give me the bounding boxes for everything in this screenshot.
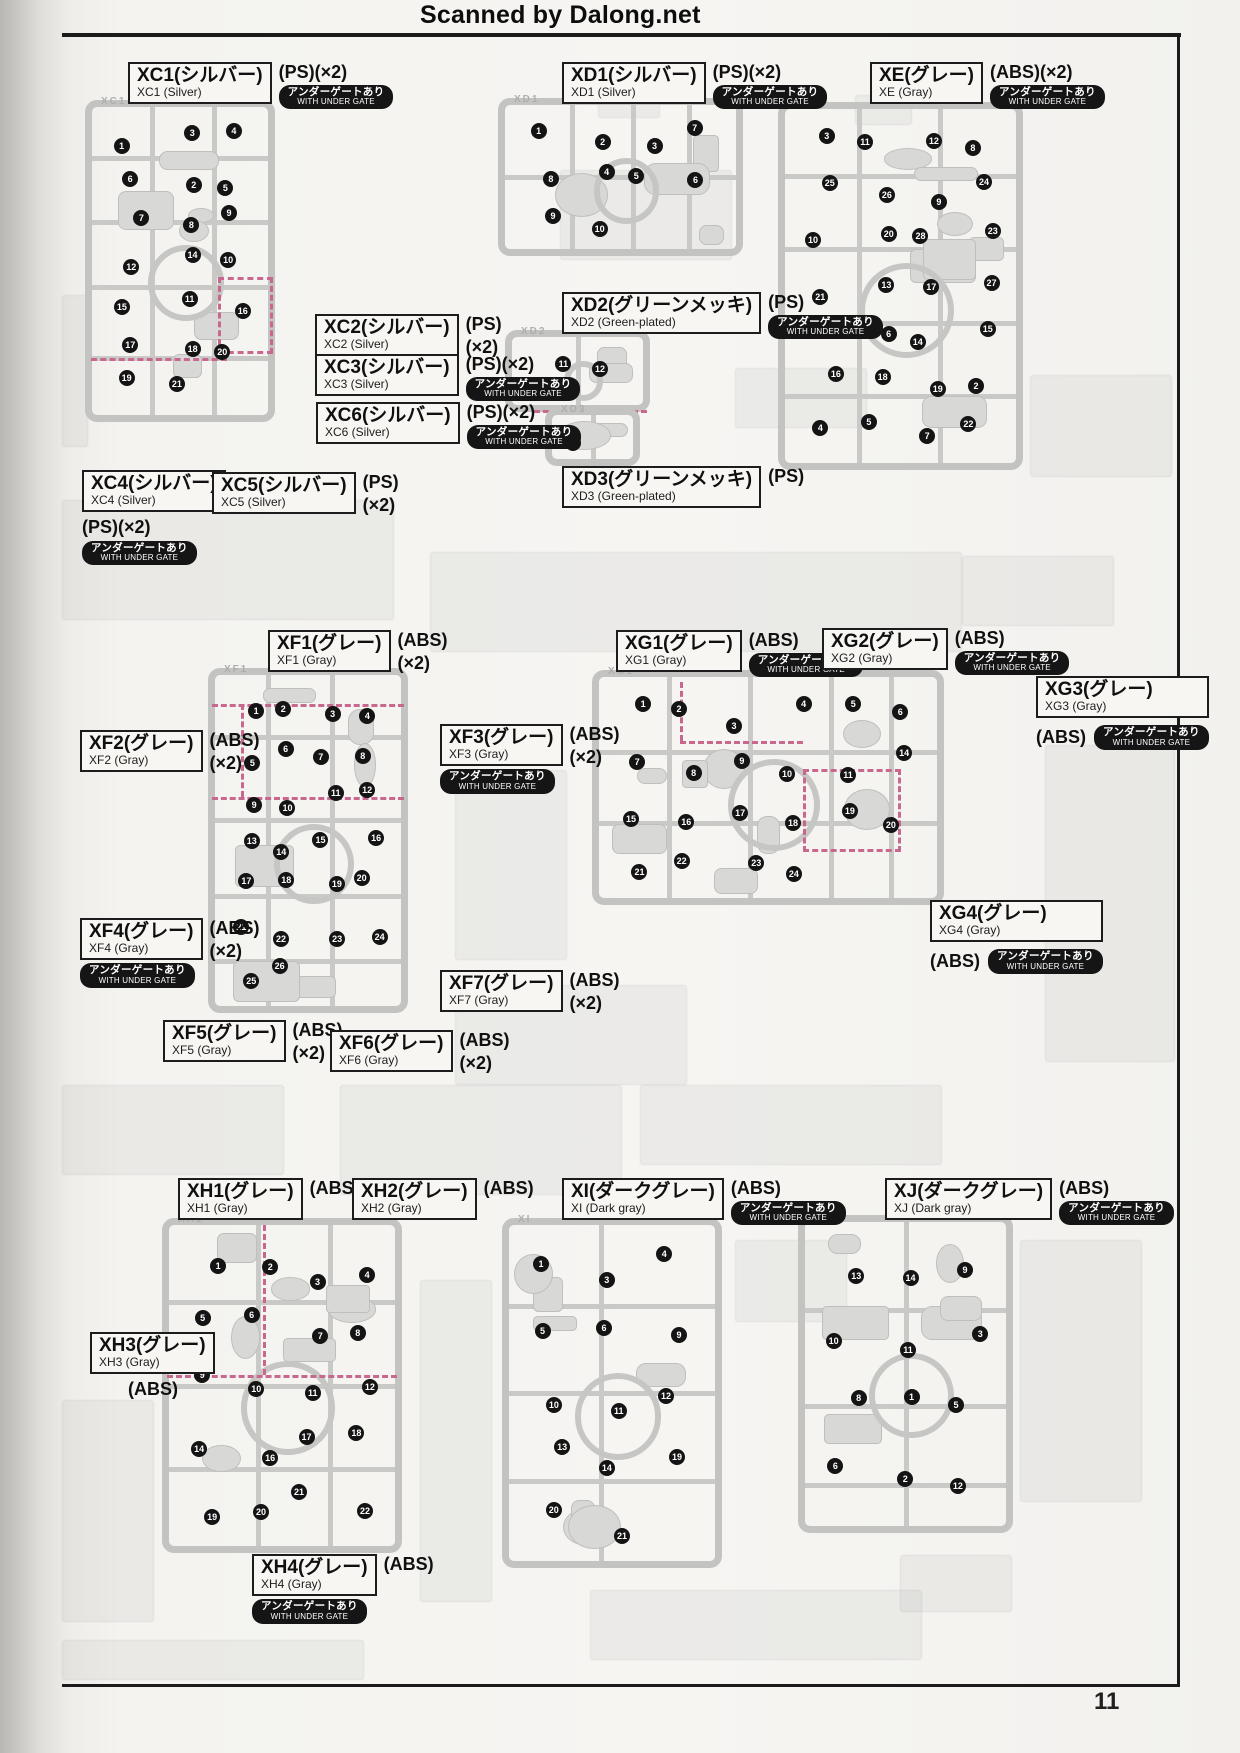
undergate-cut-line — [680, 741, 803, 744]
material-qty-text: (ABS) — [1059, 1178, 1174, 1199]
label-en-text: XF4 (Gray) — [89, 942, 194, 956]
label-side-column: (PS)(×2)アンダーゲートありWITH UNDER GATE — [467, 402, 582, 449]
part-number-marker: 11 — [182, 291, 198, 307]
material-qty-text: (ABS) — [210, 918, 260, 939]
label-jp-text: XG2(グレー) — [831, 631, 939, 652]
label-column: XG3(グレー)XG3 (Gray)(ABS)アンダーゲートありWITH UND… — [1036, 676, 1209, 750]
label-box: XG3(グレー)XG3 (Gray) — [1036, 676, 1209, 718]
part-number-marker: 6 — [687, 172, 703, 188]
label-jp-text: XI(ダークグレー) — [571, 1181, 715, 1202]
part-number-marker: 14 — [903, 1270, 919, 1286]
part-number-marker: 21 — [614, 1528, 630, 1544]
label-box: XC6(シルバー)XC6 (Silver) — [316, 402, 460, 444]
molded-part-shape — [202, 1445, 240, 1472]
badge-en-text: WITH UNDER GATE — [777, 328, 874, 336]
badge-en-text: WITH UNDER GATE — [449, 783, 546, 791]
badge-en-text: WITH UNDER GATE — [288, 98, 385, 106]
molded-part-shape — [637, 768, 668, 784]
label-box: XJ(ダークグレー)XJ (Dark gray) — [885, 1178, 1052, 1220]
badge-jp-text: アンダーゲートあり — [89, 965, 186, 976]
badge-jp-text: アンダーゲートあり — [722, 87, 819, 98]
molded-part-shape — [937, 212, 973, 236]
under-gate-badge: アンダーゲートありWITH UNDER GATE — [466, 377, 581, 402]
label-en-text: XG4 (Gray) — [939, 924, 1094, 938]
label-box: XH3(グレー)XH3 (Gray) — [90, 1332, 215, 1374]
label-jp-text: XC5(シルバー) — [221, 475, 347, 496]
badge-jp-text: アンダーゲートあり — [475, 379, 572, 390]
part-number-marker: 9 — [734, 753, 750, 769]
label-column: XC3(シルバー)XC3 (Silver) — [315, 354, 459, 396]
material-qty-text: (PS)(×2) — [279, 62, 394, 83]
badge-en-text: WITH UNDER GATE — [997, 963, 1094, 971]
label-side-column: (ABS)アンダーゲートありWITH UNDER GATE — [731, 1178, 846, 1225]
part-number-marker: 26 — [272, 958, 288, 974]
part-number-marker: 24 — [786, 866, 802, 882]
material-qty-text: (×2) — [570, 747, 620, 768]
label-en-text: XD2 (Green-plated) — [571, 316, 752, 330]
material-qty-text: (×2) — [210, 753, 260, 774]
part-number-marker: 15 — [114, 299, 130, 315]
label-below-line: (PS)(×2) — [82, 517, 226, 538]
under-gate-badge: アンダーゲートありWITH UNDER GATE — [467, 425, 582, 450]
label-jp-text: XC1(シルバー) — [137, 65, 263, 86]
part-number-marker: 14 — [191, 1441, 207, 1457]
under-gate-badge: アンダーゲートありWITH UNDER GATE — [80, 963, 195, 988]
part-number-marker: 19 — [842, 803, 858, 819]
badge-jp-text: アンダーゲートあり — [997, 951, 1094, 962]
label-column: XG2(グレー)XG2 (Gray) — [822, 628, 948, 670]
label-en-text: XG2 (Gray) — [831, 652, 939, 666]
label-jp-text: XH2(グレー) — [361, 1181, 468, 1202]
badge-jp-text: アンダーゲートあり — [288, 87, 385, 98]
part-number-marker: 6 — [122, 171, 138, 187]
label-box: XG4(グレー)XG4 (Gray) — [930, 900, 1103, 942]
label-jp-text: XF2(グレー) — [89, 733, 194, 754]
part-number-marker: 10 — [546, 1397, 562, 1413]
part-number-marker: 20 — [881, 226, 897, 242]
runner-xj: XJ13149101138156212 — [798, 1215, 1013, 1533]
part-number-marker: 17 — [299, 1429, 315, 1445]
runner-label-xc1: XC1(シルバー)XC1 (Silver)(PS)(×2)アンダーゲートありWI… — [128, 62, 393, 109]
part-number-marker: 4 — [796, 696, 812, 712]
label-column: XD3(グリーンメッキ)XD3 (Green-plated) — [562, 466, 761, 508]
part-number-marker: 6 — [881, 326, 897, 342]
badge-jp-text: アンダーゲートあり — [449, 771, 546, 782]
label-box: XC1(シルバー)XC1 (Silver) — [128, 62, 272, 104]
material-qty-text: (PS) — [466, 314, 502, 335]
label-en-text: XF3 (Gray) — [449, 748, 554, 762]
badge-en-text: WITH UNDER GATE — [999, 98, 1096, 106]
label-en-text: XC5 (Silver) — [221, 496, 347, 510]
bleed-through-ghost — [62, 1085, 284, 1175]
part-number-marker: 11 — [857, 134, 873, 150]
part-number-marker: 26 — [879, 187, 895, 203]
material-qty-text: (ABS) — [1036, 727, 1086, 748]
molded-part-shape — [568, 1505, 620, 1549]
label-box: XF5(グレー)XF5 (Gray) — [163, 1020, 286, 1062]
runner-label-xg3: XG3(グレー)XG3 (Gray)(ABS)アンダーゲートありWITH UND… — [1036, 676, 1209, 750]
label-side-column: (PS)(×2)アンダーゲートありWITH UNDER GATE — [713, 62, 828, 109]
label-jp-text: XF3(グレー) — [449, 727, 554, 748]
part-number-marker: 10 — [826, 1333, 842, 1349]
part-number-marker: 3 — [599, 1272, 615, 1288]
under-gate-badge: アンダーゲートありWITH UNDER GATE — [988, 949, 1103, 974]
badge-jp-text: アンダーゲートあり — [777, 317, 874, 328]
label-column: XI(ダークグレー)XI (Dark gray) — [562, 1178, 724, 1220]
molded-part-shape — [914, 167, 978, 181]
molded-part-shape — [714, 868, 757, 894]
badge-en-text: WITH UNDER GATE — [964, 664, 1061, 672]
label-side-column: (PS)(×2) — [363, 472, 399, 515]
label-jp-text: XH1(グレー) — [187, 1181, 294, 1202]
label-en-text: XG1 (Gray) — [625, 654, 733, 668]
badge-en-text: WITH UNDER GATE — [740, 1214, 837, 1222]
label-jp-text: XH4(グレー) — [261, 1557, 368, 1578]
label-box: XF6(グレー)XF6 (Gray) — [330, 1030, 453, 1072]
label-jp-text: XC2(シルバー) — [324, 317, 450, 338]
under-gate-badge: アンダーゲートありWITH UNDER GATE — [1094, 725, 1209, 750]
undergate-cut-line — [212, 797, 404, 800]
label-en-text: XF7 (Gray) — [449, 994, 554, 1008]
part-number-marker: 1 — [248, 703, 264, 719]
label-en-text: XJ (Dark gray) — [894, 1202, 1043, 1216]
material-qty-text: (ABS) — [484, 1178, 534, 1199]
label-en-text: XC4 (Silver) — [91, 494, 217, 508]
label-en-text: XC6 (Silver) — [325, 426, 451, 440]
label-en-text: XD1 (Silver) — [571, 86, 697, 100]
runner-label-xg2: XG2(グレー)XG2 (Gray)(ABS)アンダーゲートありWITH UND… — [822, 628, 1069, 675]
runner-label-xf3: XF3(グレー)XF3 (Gray)アンダーゲートありWITH UNDER GA… — [440, 724, 620, 794]
part-number-marker: 19 — [119, 370, 135, 386]
bleed-through-ghost — [962, 556, 1114, 626]
label-en-text: XH3 (Gray) — [99, 1356, 206, 1370]
material-qty-text: (×2) — [570, 993, 620, 1014]
part-number-marker: 3 — [972, 1326, 988, 1342]
runner-molded-tag: XD1 — [514, 94, 539, 105]
sprue-bar — [169, 1467, 395, 1472]
part-number-marker: 12 — [926, 133, 942, 149]
badge-jp-text: アンダーゲートあり — [476, 427, 573, 438]
label-jp-text: XC3(シルバー) — [324, 357, 450, 378]
part-number-marker: 5 — [535, 1323, 551, 1339]
part-number-marker: 19 — [930, 381, 946, 397]
runner-molded-tag: XC1 — [101, 96, 126, 107]
label-box: XC5(シルバー)XC5 (Silver) — [212, 472, 356, 514]
part-number-marker: 5 — [948, 1397, 964, 1413]
label-side-column: (PS)(×2)アンダーゲートありWITH UNDER GATE — [466, 354, 581, 401]
page-number: 11 — [1094, 1688, 1119, 1716]
part-number-marker: 27 — [984, 275, 1000, 291]
label-side-column: (PS)(×2) — [466, 314, 502, 357]
material-qty-text: (PS)(×2) — [713, 62, 828, 83]
part-number-marker: 12 — [950, 1478, 966, 1494]
label-side-column: (ABS)アンダーゲートありWITH UNDER GATE — [1059, 1178, 1174, 1225]
part-number-marker: 8 — [965, 140, 981, 156]
molded-part-shape — [612, 824, 667, 854]
label-column: XC6(シルバー)XC6 (Silver) — [316, 402, 460, 444]
part-number-marker: 18 — [185, 341, 201, 357]
badge-jp-text: アンダーゲートあり — [261, 1601, 358, 1612]
runner-label-xd1: XD1(シルバー)XD1 (Silver)(PS)(×2)アンダーゲートありWI… — [562, 62, 827, 109]
part-number-marker: 14 — [185, 247, 201, 263]
part-number-marker: 12 — [592, 361, 608, 377]
label-jp-text: XC6(シルバー) — [325, 405, 451, 426]
part-number-marker: 11 — [611, 1403, 627, 1419]
part-number-marker: 1 — [904, 1389, 920, 1405]
label-en-text: XH4 (Gray) — [261, 1578, 368, 1592]
runner-label-xc6: XC6(シルバー)XC6 (Silver)(PS)(×2)アンダーゲートありWI… — [316, 402, 581, 449]
runner-label-xg4: XG4(グレー)XG4 (Gray)(ABS)アンダーゲートありWITH UND… — [930, 900, 1103, 974]
part-number-marker: 1 — [114, 138, 130, 154]
badge-jp-text: アンダーゲートあり — [999, 87, 1096, 98]
label-box: XE(グレー)XE (Gray) — [870, 62, 983, 104]
bleed-through-ghost — [455, 770, 567, 960]
label-column: XH2(グレー)XH2 (Gray) — [352, 1178, 477, 1220]
under-gate-badge: アンダーゲートありWITH UNDER GATE — [955, 651, 1070, 676]
label-box: XI(ダークグレー)XI (Dark gray) — [562, 1178, 724, 1220]
part-number-marker: 22 — [273, 931, 289, 947]
label-jp-text: XF7(グレー) — [449, 973, 554, 994]
label-column: XH3(グレー)XH3 (Gray)(ABS) — [90, 1332, 215, 1400]
bleed-through-ghost — [62, 1400, 154, 1622]
part-number-marker: 5 — [195, 1310, 211, 1326]
part-number-marker: 19 — [669, 1449, 685, 1465]
material-qty-text: (ABS) — [398, 630, 448, 651]
runner-label-xh2: XH2(グレー)XH2 (Gray)(ABS) — [352, 1178, 534, 1220]
bleed-through-ghost — [1020, 1240, 1142, 1502]
under-gate-badge: アンダーゲートありWITH UNDER GATE — [768, 315, 883, 340]
label-below-line: (ABS) — [128, 1379, 215, 1400]
part-number-marker: 16 — [235, 303, 251, 319]
material-qty-text: (ABS)(×2) — [990, 62, 1105, 83]
part-number-marker: 23 — [748, 855, 764, 871]
label-box: XF3(グレー)XF3 (Gray) — [440, 724, 563, 766]
part-number-marker: 11 — [305, 1385, 321, 1401]
material-qty-text: (ABS) — [955, 628, 1070, 649]
part-number-marker: 19 — [204, 1509, 220, 1525]
molded-part-shape — [824, 1414, 882, 1444]
label-box: XG2(グレー)XG2 (Gray) — [822, 628, 948, 670]
part-number-marker: 3 — [726, 718, 742, 734]
part-number-marker: 7 — [313, 749, 329, 765]
label-side-column: (ABS)(×2) — [398, 630, 448, 673]
label-jp-text: XD2(グリーンメッキ) — [571, 295, 752, 316]
material-qty-text: (ABS) — [570, 724, 620, 745]
label-column: XF6(グレー)XF6 (Gray) — [330, 1030, 453, 1072]
part-number-marker: 22 — [960, 416, 976, 432]
label-column: XF7(グレー)XF7 (Gray) — [440, 970, 563, 1012]
runner-label-xc2: XC2(シルバー)XC2 (Silver)(PS)(×2) — [315, 314, 502, 357]
bleed-through-ghost — [1030, 375, 1172, 477]
material-qty-text: (ABS) — [930, 951, 980, 972]
part-number-marker: 2 — [262, 1259, 278, 1275]
label-column: XC4(シルバー)XC4 (Silver)(PS)(×2)アンダーゲートありWI… — [82, 470, 226, 565]
label-jp-text: XG1(グレー) — [625, 633, 733, 654]
part-number-marker: 16 — [368, 830, 384, 846]
badge-en-text: WITH UNDER GATE — [475, 390, 572, 398]
label-row-line: (ABS)アンダーゲートありWITH UNDER GATE — [930, 949, 1103, 974]
part-number-marker: 13 — [244, 833, 260, 849]
runner-label-xf2: XF2(グレー)XF2 (Gray)(ABS)(×2) — [80, 730, 260, 773]
part-number-marker: 10 — [248, 1381, 264, 1397]
label-column: XH1(グレー)XH1 (Gray) — [178, 1178, 303, 1220]
label-box: XH1(グレー)XH1 (Gray) — [178, 1178, 303, 1220]
part-number-marker: 9 — [246, 797, 262, 813]
part-number-marker: 20 — [883, 817, 899, 833]
part-number-marker: 23 — [985, 223, 1001, 239]
under-gate-badge: アンダーゲートありWITH UNDER GATE — [279, 85, 394, 110]
label-side-column: (ABS) — [384, 1554, 434, 1575]
part-number-marker: 4 — [599, 164, 615, 180]
material-qty-text: (PS)(×2) — [467, 402, 582, 423]
label-box: XC2(シルバー)XC2 (Silver) — [315, 314, 459, 356]
part-number-marker: 2 — [595, 134, 611, 150]
under-gate-badge: アンダーゲートありWITH UNDER GATE — [713, 85, 828, 110]
material-qty-text: (PS)(×2) — [466, 354, 581, 375]
part-number-marker: 10 — [779, 766, 795, 782]
label-en-text: XF5 (Gray) — [172, 1044, 277, 1058]
material-qty-text: (×2) — [398, 653, 448, 674]
label-column: XF3(グレー)XF3 (Gray)アンダーゲートありWITH UNDER GA… — [440, 724, 563, 794]
label-jp-text: XJ(ダークグレー) — [894, 1181, 1043, 1202]
part-number-marker: 21 — [169, 376, 185, 392]
label-column: XD2(グリーンメッキ)XD2 (Green-plated) — [562, 292, 761, 334]
part-number-marker: 12 — [359, 782, 375, 798]
runner-xi: XI1345691011121314192021 — [502, 1218, 722, 1568]
label-box: XH2(グレー)XH2 (Gray) — [352, 1178, 477, 1220]
part-number-marker: 3 — [184, 125, 200, 141]
molded-part-shape — [271, 1277, 311, 1300]
part-number-marker: 20 — [546, 1502, 562, 1518]
molded-part-shape — [843, 720, 881, 749]
label-column: XG4(グレー)XG4 (Gray)(ABS)アンダーゲートありWITH UND… — [930, 900, 1103, 974]
runner-label-xe: XE(グレー)XE (Gray)(ABS)(×2)アンダーゲートありWITH U… — [870, 62, 1105, 109]
content-layer: XC11346257891214101511161718201921XD1123… — [0, 0, 1240, 1753]
part-number-marker: 6 — [596, 1320, 612, 1336]
label-en-text: XH2 (Gray) — [361, 1202, 468, 1216]
bleed-through-ghost — [900, 1555, 1012, 1612]
runner-label-xj: XJ(ダークグレー)XJ (Dark gray)(ABS)アンダーゲートありWI… — [885, 1178, 1174, 1225]
undergate-cut-line — [91, 358, 228, 361]
badge-jp-text: アンダーゲートあり — [1068, 1203, 1165, 1214]
part-number-marker: 8 — [355, 748, 371, 764]
runner-label-xf4: XF4(グレー)XF4 (Gray)アンダーゲートありWITH UNDER GA… — [80, 918, 260, 988]
label-en-text: XC3 (Silver) — [324, 378, 450, 392]
runner-xg1: XG112345678910111415161718192021222324 — [592, 670, 944, 905]
label-box: XC4(シルバー)XC4 (Silver) — [82, 470, 226, 512]
label-side-column: (ABS)(×2) — [570, 970, 620, 1013]
label-row-line: (ABS)アンダーゲートありWITH UNDER GATE — [1036, 725, 1209, 750]
label-en-text: XI (Dark gray) — [571, 1202, 715, 1216]
part-number-marker: 1 — [531, 123, 547, 139]
label-side-column: (ABS)(×2) — [210, 918, 260, 961]
material-qty-text: (PS)(×2) — [82, 517, 226, 538]
label-box: XC3(シルバー)XC3 (Silver) — [315, 354, 459, 396]
under-gate-badge: アンダーゲートありWITH UNDER GATE — [440, 769, 555, 794]
runner-label-xi: XI(ダークグレー)XI (Dark gray)(ABS)アンダーゲートありWI… — [562, 1178, 846, 1225]
molded-part-shape — [263, 688, 316, 704]
manual-page: Scanned by Dalong.net XC1134625789121410… — [0, 0, 1240, 1753]
label-en-text: XF2 (Gray) — [89, 754, 194, 768]
runner-label-xf6: XF6(グレー)XF6 (Gray)(ABS)(×2) — [330, 1030, 510, 1073]
sprue-bar — [266, 675, 271, 1006]
badge-en-text: WITH UNDER GATE — [1103, 739, 1200, 747]
label-side-column: (ABS)アンダーゲートありWITH UNDER GATE — [955, 628, 1070, 675]
part-number-marker: 22 — [674, 853, 690, 869]
molded-part-shape — [159, 151, 219, 170]
runner-label-xf5: XF5(グレー)XF5 (Gray)(ABS)(×2) — [163, 1020, 343, 1063]
label-column: XF5(グレー)XF5 (Gray) — [163, 1020, 286, 1062]
badge-en-text: WITH UNDER GATE — [261, 1613, 358, 1621]
material-qty-text: (×2) — [460, 1053, 510, 1074]
label-column: XC1(シルバー)XC1 (Silver) — [128, 62, 272, 104]
label-column: XC2(シルバー)XC2 (Silver) — [315, 314, 459, 356]
runner-label-xf7: XF7(グレー)XF7 (Gray)(ABS)(×2) — [440, 970, 620, 1013]
label-jp-text: XG3(グレー) — [1045, 679, 1200, 700]
part-number-marker: 11 — [840, 767, 856, 783]
label-en-text: XG3 (Gray) — [1045, 700, 1200, 714]
molded-part-shape — [922, 396, 986, 428]
part-number-marker: 6 — [244, 1307, 260, 1323]
under-gate-badge: アンダーゲートありWITH UNDER GATE — [990, 85, 1105, 110]
under-gate-badge: アンダーゲートありWITH UNDER GATE — [82, 541, 197, 566]
runner-xe: XE31112825269241020282321131727161415161… — [778, 102, 1023, 470]
badge-jp-text: アンダーゲートあり — [91, 543, 188, 554]
part-number-marker: 10 — [592, 221, 608, 237]
label-jp-text: XE(グレー) — [879, 65, 974, 86]
runner-label-xd2: XD2(グリーンメッキ)XD2 (Green-plated)(PS)アンダーゲー… — [562, 292, 883, 339]
label-column: XF4(グレー)XF4 (Gray)アンダーゲートありWITH UNDER GA… — [80, 918, 203, 988]
label-side-column: (PS) — [768, 466, 804, 487]
sprue-bar — [215, 818, 401, 823]
label-jp-text: XF4(グレー) — [89, 921, 194, 942]
part-number-marker: 11 — [328, 785, 344, 801]
part-number-marker: 3 — [819, 128, 835, 144]
label-side-column: (PS)(×2)アンダーゲートありWITH UNDER GATE — [279, 62, 394, 109]
runner-xd1: XD112378456910 — [498, 98, 743, 256]
label-box: XG1(グレー)XG1 (Gray) — [616, 630, 742, 672]
material-qty-text: (×2) — [210, 941, 260, 962]
badge-jp-text: アンダーゲートあり — [964, 653, 1061, 664]
material-qty-text: (ABS) — [384, 1554, 434, 1575]
label-side-column: (ABS)(×2) — [210, 730, 260, 773]
label-column: XE(グレー)XE (Gray) — [870, 62, 983, 104]
material-qty-text: (ABS) — [570, 970, 620, 991]
label-jp-text: XF1(グレー) — [277, 633, 382, 654]
molded-part-shape — [699, 225, 724, 244]
material-qty-text: (ABS) — [128, 1379, 215, 1400]
label-column: XD1(シルバー)XD1 (Silver) — [562, 62, 706, 104]
runner-molded-tag: XF1 — [224, 664, 248, 675]
badge-en-text: WITH UNDER GATE — [1068, 1214, 1165, 1222]
part-number-marker: 20 — [354, 870, 370, 886]
molded-part-shape — [828, 1234, 861, 1254]
label-jp-text: XD3(グリーンメッキ) — [571, 469, 752, 490]
label-en-text: XD3 (Green-plated) — [571, 490, 752, 504]
runner-label-xh3: XH3(グレー)XH3 (Gray)(ABS) — [90, 1332, 215, 1400]
label-box: XD1(シルバー)XD1 (Silver) — [562, 62, 706, 104]
bleed-through-ghost — [62, 1640, 364, 1680]
badge-en-text: WITH UNDER GATE — [89, 977, 186, 985]
label-en-text: XC2 (Silver) — [324, 338, 450, 352]
molded-part-shape — [326, 1285, 370, 1313]
part-number-marker: 19 — [329, 876, 345, 892]
molded-part-shape — [217, 1233, 257, 1263]
badge-jp-text: アンダーゲートあり — [740, 1203, 837, 1214]
part-number-marker: 24 — [372, 929, 388, 945]
label-column: XH4(グレー)XH4 (Gray)アンダーゲートありWITH UNDER GA… — [252, 1554, 377, 1624]
runner-label-xh4: XH4(グレー)XH4 (Gray)アンダーゲートありWITH UNDER GA… — [252, 1554, 434, 1624]
